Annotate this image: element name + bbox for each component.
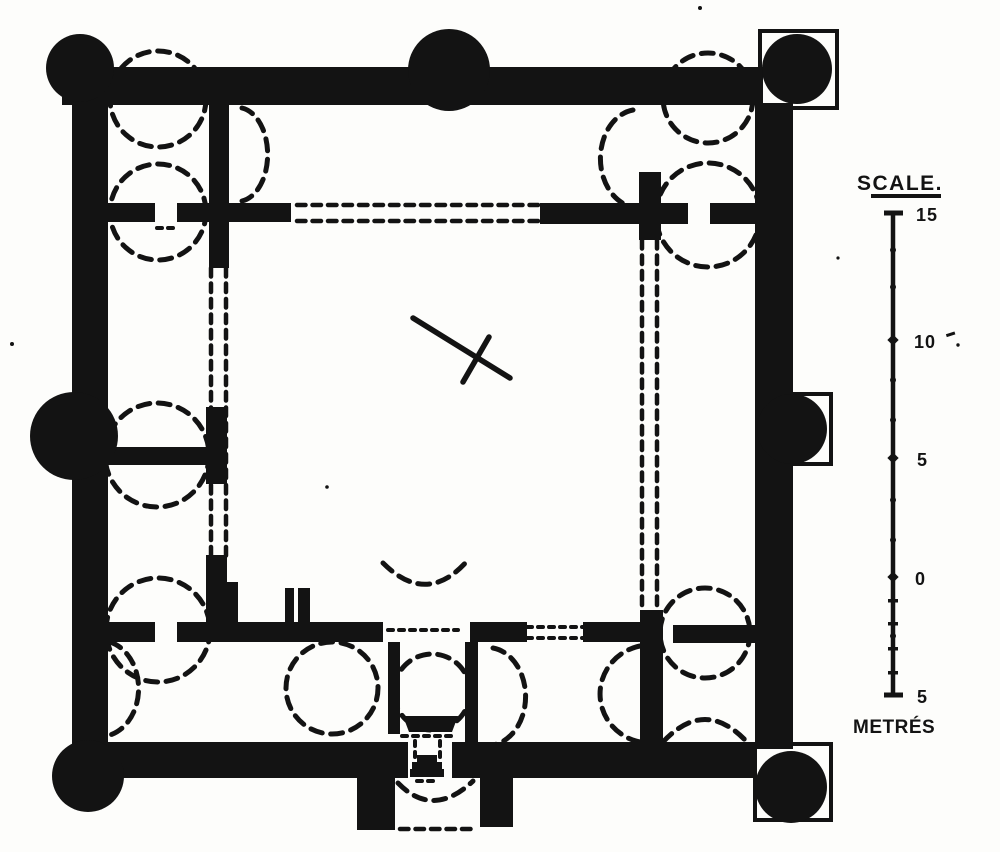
ink-speck	[946, 332, 955, 338]
scale-title-underline	[871, 194, 941, 198]
scale-tick-label: 10	[914, 332, 936, 352]
nw-cross-wall	[177, 203, 291, 222]
scale-bar-knob	[890, 247, 896, 253]
half-dome-arc	[600, 110, 633, 207]
nw-cross-wall	[108, 203, 155, 222]
arcade-pier-west-south	[227, 582, 238, 622]
vestibule-threshold	[403, 716, 458, 732]
scale-bar-knob	[890, 497, 896, 503]
entrance-gateway	[357, 642, 513, 830]
scale-unit-label: METRÉS	[853, 716, 935, 738]
south-range-wall	[470, 622, 527, 642]
plan-figure: SCALE. 15 10 5 0 5 METRÉS	[0, 0, 1000, 852]
vestibule-wall-east	[465, 642, 478, 742]
scale-bar-knob	[890, 284, 896, 290]
scale-minor-tick	[888, 599, 898, 603]
south-wall-east-segment	[452, 742, 757, 778]
scale-tick-label: 0	[915, 569, 926, 589]
corner-tower-se	[755, 751, 827, 823]
scale-bar-knob	[890, 537, 896, 543]
entrance-steps	[410, 769, 444, 777]
scale-minor-tick	[888, 671, 898, 675]
courtyard-arcade	[157, 205, 657, 638]
arcade-pier-west-mid	[206, 407, 227, 484]
ink-speck	[10, 342, 14, 346]
court-pier	[298, 588, 310, 622]
west-cross-wall	[108, 447, 208, 465]
se-room-wall	[640, 610, 663, 747]
ink-speck	[698, 6, 702, 10]
scale-major-tick	[887, 571, 898, 582]
half-dome-arc	[493, 648, 526, 745]
south-wall-west-segment	[80, 742, 408, 778]
dome-outline	[286, 642, 378, 734]
entrance-bay-arch	[383, 560, 468, 584]
south-range-wall	[177, 622, 383, 642]
vestibule-wall-west	[388, 642, 400, 734]
half-dome-arc	[242, 108, 268, 201]
ink-speck	[836, 256, 839, 259]
porch-pier-east	[480, 778, 513, 827]
scale-major-tick	[887, 452, 898, 463]
scale-major-tick	[887, 334, 898, 345]
nw-room-wall	[209, 103, 229, 268]
scale-bar-knob	[890, 377, 896, 383]
north-range-wall	[540, 203, 688, 224]
corner-tower-nw	[46, 34, 114, 102]
scale-minor-tick	[888, 622, 898, 626]
bastion-north	[408, 29, 490, 111]
scale-tick-label: 5	[917, 687, 928, 707]
scale-tick-label: 5	[917, 450, 928, 470]
arcade-pier-ne	[639, 172, 661, 240]
entrance-steps	[412, 762, 442, 770]
south-range-wall	[108, 622, 155, 642]
north-range-wall	[710, 203, 755, 224]
scale-bar-knob	[890, 417, 896, 423]
corner-towers	[46, 31, 837, 823]
scale-bar-knob	[890, 633, 896, 639]
scale-bar: SCALE. 15 10 5 0 5 METRÉS	[853, 172, 943, 738]
ink-speck	[956, 343, 959, 346]
porch-pier-west	[357, 778, 395, 830]
bastion-east	[757, 394, 827, 464]
entrance-steps	[417, 755, 437, 763]
corner-tower-sw	[52, 740, 124, 812]
scale-title: SCALE.	[857, 172, 943, 195]
bastion-west	[30, 392, 118, 480]
arcade-pier-west-south	[206, 555, 227, 622]
porch-vault-arc	[398, 781, 473, 801]
court-pier	[285, 588, 294, 622]
scale-minor-tick	[888, 647, 898, 651]
south-range-wall	[583, 622, 640, 642]
se-stub-wall	[673, 625, 755, 643]
cross-long-stroke	[413, 318, 510, 378]
center-cross-mark	[413, 318, 510, 382]
scale-tick-label: 15	[916, 205, 938, 225]
half-dome-arc	[600, 646, 640, 742]
corner-tower-ne	[762, 34, 832, 104]
half-dome-arc	[663, 720, 747, 743]
ink-speck	[325, 485, 329, 489]
